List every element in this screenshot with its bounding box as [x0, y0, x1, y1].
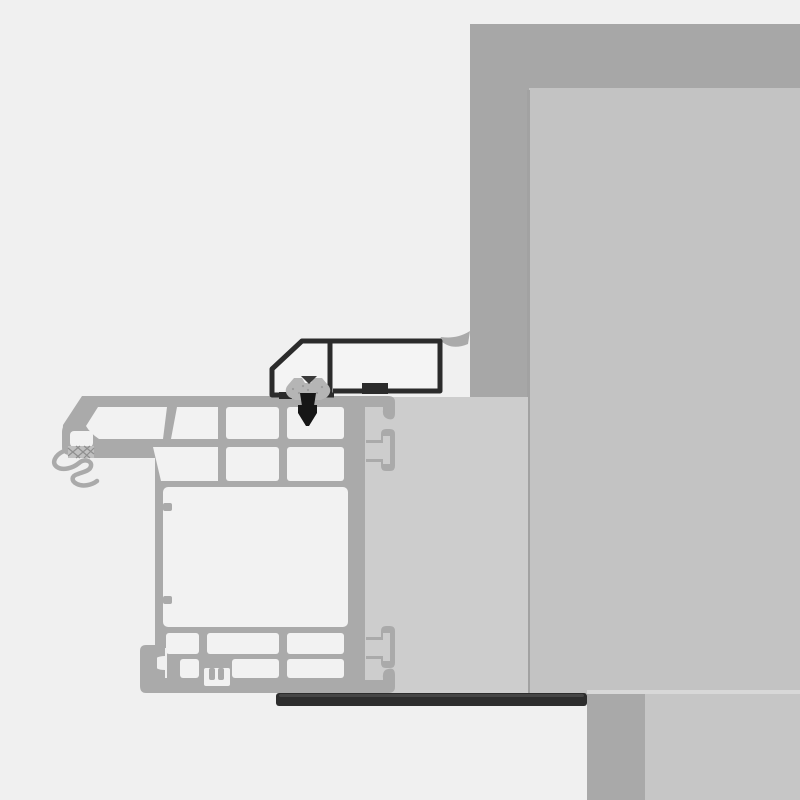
frame-chamber — [166, 633, 199, 654]
frame-chamber — [287, 633, 344, 654]
sealing-membrane-bar — [276, 693, 587, 706]
lower-wall-column — [587, 694, 645, 800]
flashing-tab — [362, 383, 388, 394]
chamber-nub — [163, 503, 172, 511]
frame-chamber — [287, 447, 344, 481]
frame-chamber — [226, 407, 279, 439]
frame-chamber — [86, 407, 167, 439]
frame-gasket-lobe-cavity — [70, 431, 93, 447]
chamber-nub — [163, 596, 172, 604]
frame-chamber — [153, 447, 218, 481]
frame-chamber — [287, 659, 344, 678]
gasket-tooth — [218, 668, 224, 680]
drawing-canvas — [0, 0, 800, 800]
interior-wall — [529, 88, 800, 694]
gasket-tooth — [209, 668, 215, 680]
compression-gasket-hatch — [68, 446, 94, 458]
frame-main-chamber — [163, 487, 348, 627]
frame-chamber — [171, 407, 218, 439]
frame-chamber — [180, 659, 199, 678]
frame-chamber — [226, 447, 279, 481]
gasket-groove-notch — [204, 668, 230, 686]
frame-chamber — [232, 659, 279, 678]
frame-chamber — [207, 633, 279, 654]
hook-tab — [168, 661, 179, 672]
lower-wall — [645, 694, 800, 800]
